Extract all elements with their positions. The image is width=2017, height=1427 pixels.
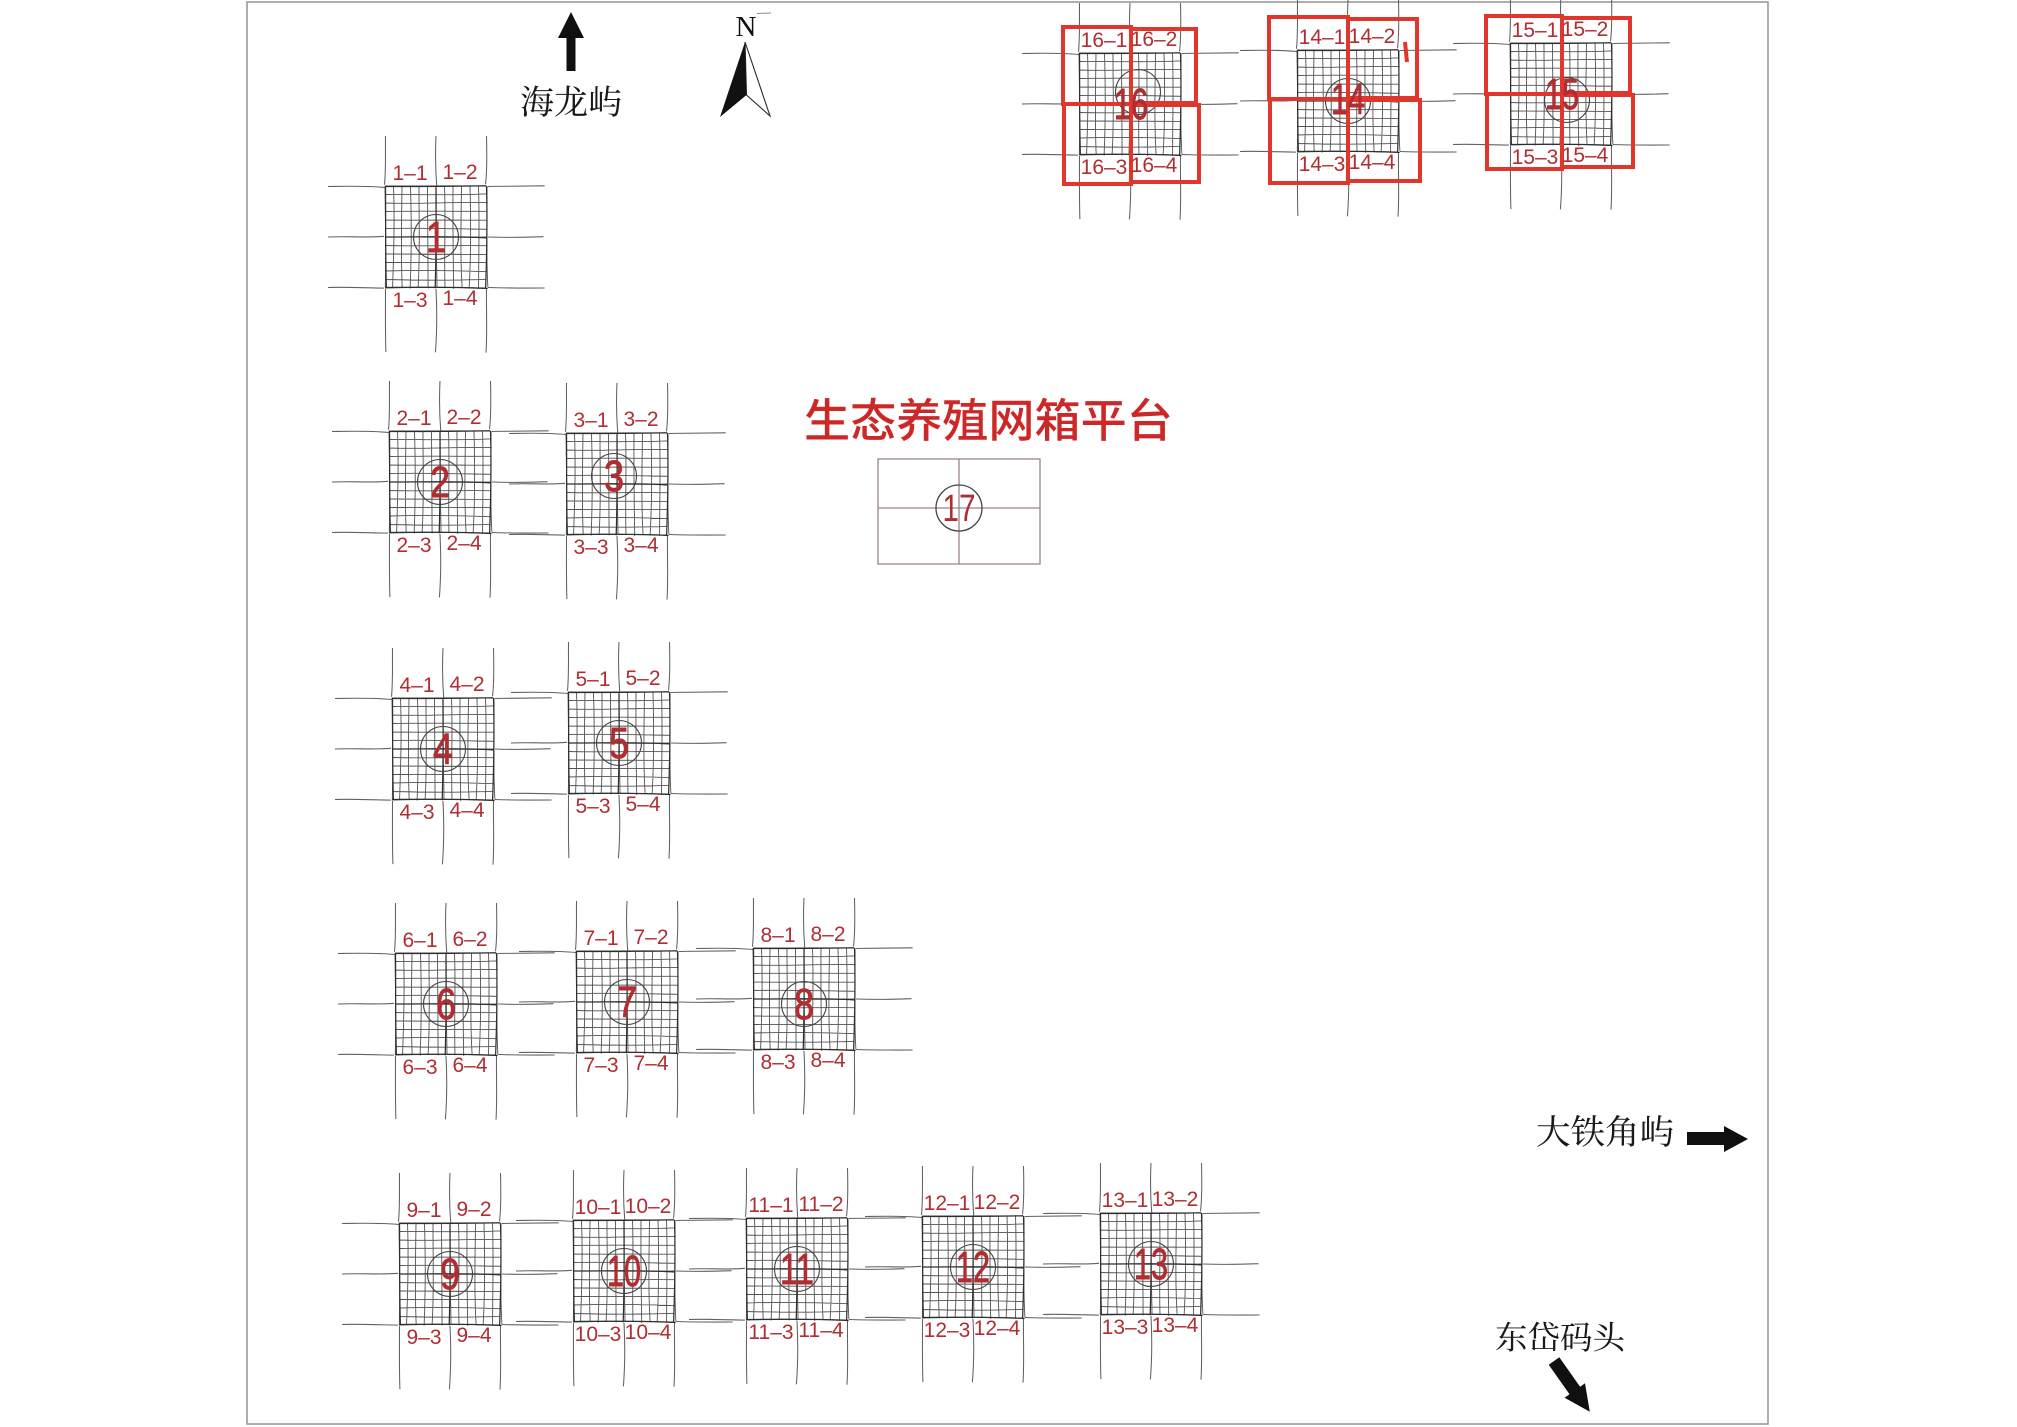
svg-text:13: 13 <box>1134 1240 1168 1289</box>
svg-text:14–4: 14–4 <box>1349 151 1396 174</box>
svg-text:13–2: 13–2 <box>1152 1188 1199 1211</box>
svg-text:5–2: 5–2 <box>625 667 660 690</box>
svg-text:6–4: 6–4 <box>452 1054 487 1077</box>
svg-text:7–2: 7–2 <box>633 926 668 949</box>
svg-text:17: 17 <box>943 488 976 530</box>
svg-text:10–1: 10–1 <box>575 1196 622 1219</box>
svg-text:9–4: 9–4 <box>456 1324 491 1347</box>
svg-text:6: 6 <box>436 980 456 1029</box>
svg-text:4–1: 4–1 <box>399 674 434 697</box>
svg-text:8–2: 8–2 <box>810 923 845 946</box>
svg-text:13–4: 13–4 <box>1152 1314 1199 1337</box>
svg-text:10–4: 10–4 <box>625 1321 672 1344</box>
svg-text:3–2: 3–2 <box>623 408 658 431</box>
svg-text:10: 10 <box>607 1247 641 1296</box>
svg-text:9–1: 9–1 <box>406 1199 441 1222</box>
svg-text:16–4: 16–4 <box>1131 154 1178 177</box>
svg-text:13–1: 13–1 <box>1102 1189 1149 1212</box>
svg-text:14–2: 14–2 <box>1349 25 1396 48</box>
svg-text:15–1: 15–1 <box>1512 19 1559 42</box>
svg-text:6–1: 6–1 <box>402 929 437 952</box>
svg-text:9–2: 9–2 <box>456 1198 491 1221</box>
svg-text:11–3: 11–3 <box>748 1321 793 1344</box>
svg-text:2–3: 2–3 <box>396 534 431 557</box>
svg-text:15–4: 15–4 <box>1562 144 1609 167</box>
svg-text:14–3: 14–3 <box>1299 153 1346 176</box>
svg-text:N: N <box>736 11 757 43</box>
svg-text:5: 5 <box>609 719 629 768</box>
svg-text:10–2: 10–2 <box>625 1195 672 1218</box>
svg-text:1–4: 1–4 <box>442 287 477 310</box>
svg-text:3–3: 3–3 <box>573 536 608 559</box>
svg-text:7: 7 <box>617 978 637 1027</box>
svg-text:4–4: 4–4 <box>449 799 484 822</box>
svg-text:15–2: 15–2 <box>1562 18 1609 41</box>
svg-text:13–3: 13–3 <box>1102 1316 1149 1339</box>
svg-text:7–3: 7–3 <box>583 1054 618 1077</box>
svg-text:6–2: 6–2 <box>452 928 487 951</box>
svg-text:2: 2 <box>430 458 450 507</box>
svg-text:2–4: 2–4 <box>446 532 481 555</box>
svg-text:12–2: 12–2 <box>974 1191 1021 1214</box>
svg-text:4–3: 4–3 <box>399 801 434 824</box>
svg-text:8–4: 8–4 <box>810 1049 845 1072</box>
svg-text:16–2: 16–2 <box>1131 28 1178 51</box>
svg-text:16–1: 16–1 <box>1081 29 1128 52</box>
svg-text:3–1: 3–1 <box>573 409 608 432</box>
svg-text:8: 8 <box>794 980 814 1029</box>
svg-text:7–1: 7–1 <box>583 927 618 950</box>
svg-text:3: 3 <box>604 452 624 501</box>
svg-text:14–1: 14–1 <box>1299 26 1346 49</box>
svg-text:16: 16 <box>1114 80 1148 129</box>
svg-text:10–3: 10–3 <box>575 1323 622 1346</box>
svg-text:11–1: 11–1 <box>748 1194 793 1217</box>
svg-text:9: 9 <box>440 1250 460 1299</box>
svg-text:12–1: 12–1 <box>924 1192 971 1215</box>
svg-text:15–3: 15–3 <box>1512 146 1559 169</box>
svg-text:4–2: 4–2 <box>449 673 484 696</box>
svg-text:8–3: 8–3 <box>760 1051 795 1074</box>
svg-text:4: 4 <box>433 725 453 774</box>
svg-text:1–2: 1–2 <box>442 161 477 184</box>
svg-text:11–2: 11–2 <box>798 1193 843 1216</box>
svg-text:16–3: 16–3 <box>1081 156 1128 179</box>
svg-text:7–4: 7–4 <box>633 1052 668 1075</box>
svg-text:5–4: 5–4 <box>625 793 660 816</box>
svg-text:3–4: 3–4 <box>623 534 658 557</box>
svg-text:12: 12 <box>956 1243 990 1292</box>
svg-text:8–1: 8–1 <box>760 924 795 947</box>
svg-text:15: 15 <box>1545 70 1579 119</box>
svg-text:9–3: 9–3 <box>406 1326 441 1349</box>
svg-text:11: 11 <box>780 1245 814 1294</box>
svg-text:2–2: 2–2 <box>446 406 481 429</box>
svg-text:1–1: 1–1 <box>392 162 427 185</box>
svg-text:14: 14 <box>1331 75 1365 124</box>
svg-text:5–1: 5–1 <box>575 668 610 691</box>
svg-text:12–4: 12–4 <box>974 1317 1021 1340</box>
svg-text:6–3: 6–3 <box>402 1056 437 1079</box>
svg-text:5–3: 5–3 <box>575 795 610 818</box>
svg-text:1: 1 <box>426 213 446 262</box>
svg-text:2–1: 2–1 <box>396 407 431 430</box>
svg-text:12–3: 12–3 <box>924 1319 971 1342</box>
svg-text:11–4: 11–4 <box>798 1319 843 1342</box>
svg-text:1–3: 1–3 <box>392 289 427 312</box>
